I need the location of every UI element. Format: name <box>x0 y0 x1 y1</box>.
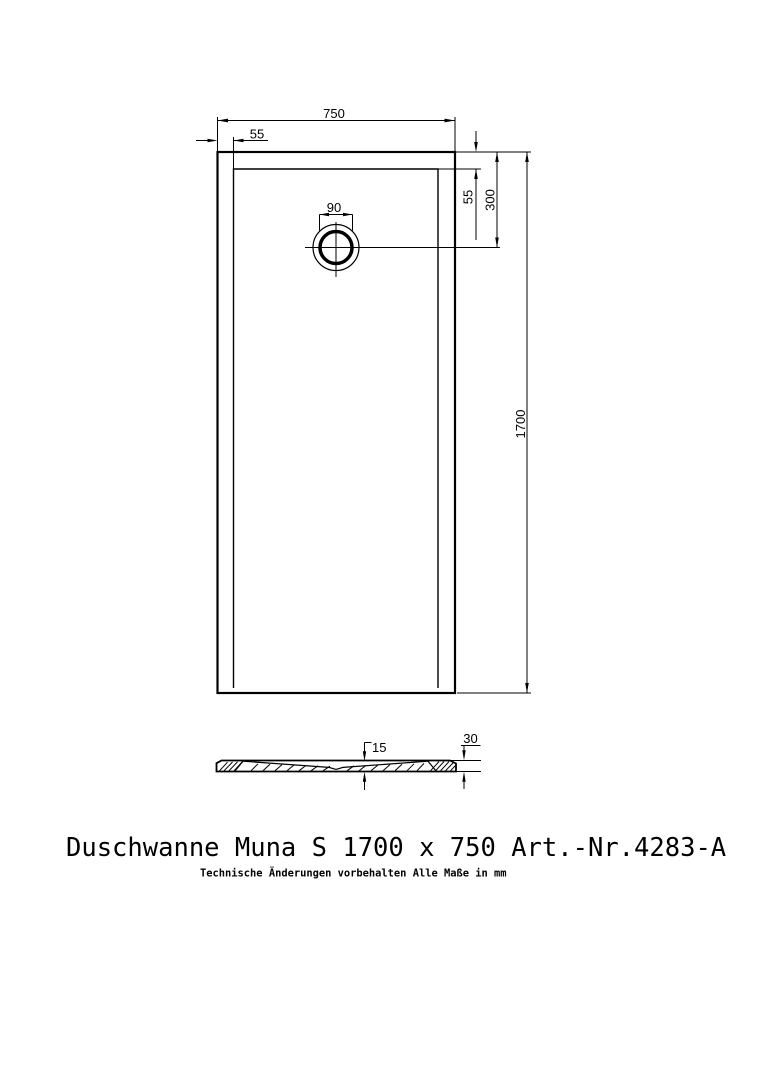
dim-floor-thickness-label: 15 <box>372 740 386 755</box>
dim-drain-from-top-label: 300 <box>483 189 498 211</box>
plan-dimensions: 750 55 55 300 1700 90 <box>196 106 531 693</box>
arrowhead <box>445 119 456 123</box>
arrowhead <box>208 139 218 143</box>
arrowhead <box>462 750 465 760</box>
arrowhead <box>363 772 366 782</box>
dim-total-height-label: 30 <box>463 731 477 746</box>
dim-rim-offset-left-label: 55 <box>250 127 264 142</box>
dim-overall-width-label: 750 <box>323 106 345 121</box>
dim-overall-length-label: 1700 <box>513 410 528 439</box>
arrowhead <box>474 142 478 152</box>
section-view <box>217 761 457 772</box>
dim-rim-offset-top-label: 55 <box>461 190 476 204</box>
arrowhead <box>474 169 478 179</box>
drawing-page: 750 55 55 300 1700 90 <box>0 0 763 1080</box>
arrowhead <box>218 119 229 123</box>
arrowhead <box>343 213 353 216</box>
arrowhead <box>234 139 244 143</box>
dim-drain-diameter-label: 90 <box>327 200 341 215</box>
arrowhead <box>525 152 529 162</box>
arrowhead <box>495 238 499 248</box>
plan-view <box>218 152 501 693</box>
drawing-disclaimer: Technische Änderungen vorbehalten Alle M… <box>200 866 507 880</box>
technical-drawing-canvas: 750 55 55 300 1700 90 <box>0 0 763 1080</box>
drawing-title: Duschwanne Muna S 1700 x 750 Art.-Nr.428… <box>66 833 726 863</box>
arrowhead <box>495 152 499 162</box>
arrowhead <box>525 683 529 693</box>
title-block: Duschwanne Muna S 1700 x 750 Art.-Nr.428… <box>66 833 726 880</box>
arrowhead <box>462 772 465 782</box>
